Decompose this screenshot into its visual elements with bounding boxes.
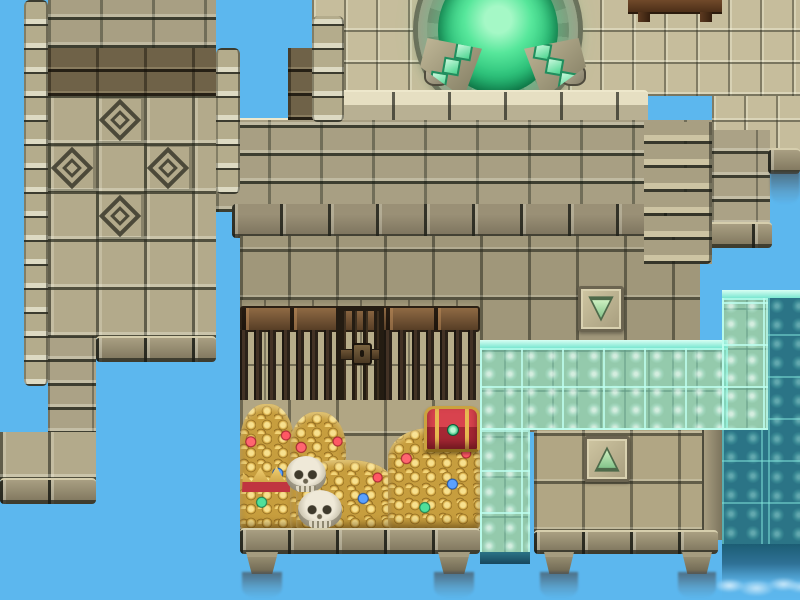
- diamond-tile: [144, 144, 192, 192]
- tower-base-ledge: [0, 478, 96, 504]
- table-leg: [638, 12, 650, 22]
- game-viewport: [0, 0, 800, 600]
- treasure-chest[interactable]: [424, 406, 480, 452]
- water-column: [480, 430, 530, 556]
- platform-ledge: [534, 530, 718, 554]
- table-leg: [700, 12, 712, 22]
- support-foot: [544, 552, 574, 574]
- platform-edge: [702, 430, 722, 540]
- wall-bricks: [216, 120, 712, 212]
- down-arrow-icon: [587, 295, 616, 324]
- tower-base: [0, 432, 96, 480]
- water-right: [722, 298, 768, 430]
- diamond-tile: [96, 96, 144, 144]
- wall-stairs: [644, 122, 712, 264]
- cell-door[interactable]: [336, 306, 384, 406]
- right-column-ledge: [704, 222, 772, 248]
- tower-right-trim: [216, 48, 240, 194]
- falling-mist: [242, 572, 282, 598]
- cliff-ledge: [768, 148, 800, 174]
- tower-dark-band: [48, 48, 216, 96]
- terrace-left-trim: [312, 16, 344, 122]
- diamond-tile: [96, 192, 144, 240]
- tower-left-trim: [24, 0, 48, 386]
- tower-ledge: [96, 336, 216, 362]
- diamond-tile: [48, 144, 96, 192]
- cell-bars: [240, 330, 336, 406]
- support-foot: [438, 552, 470, 574]
- right-column: [712, 130, 770, 226]
- wall-cap: [336, 90, 648, 124]
- falling-mist: [540, 572, 578, 598]
- water-sheet: [480, 348, 728, 430]
- door-lock-icon: [352, 343, 372, 365]
- up-arrow-icon: [593, 445, 622, 474]
- waterfall-mist: [722, 544, 800, 600]
- treasure-ledge: [240, 528, 480, 554]
- water-right-deep: [768, 298, 800, 546]
- tower-bricks: [48, 0, 216, 48]
- falling-mist: [434, 572, 474, 598]
- tower-tiles-low: [48, 288, 216, 338]
- support-foot: [682, 552, 712, 574]
- falling-mist: [678, 572, 716, 598]
- down-arrow-plaque[interactable]: [578, 286, 624, 332]
- water-right-lower: [722, 430, 768, 546]
- skull: [298, 490, 342, 528]
- wall-notch-column: [288, 48, 314, 120]
- water-column-base: [480, 552, 530, 564]
- support-foot: [246, 552, 278, 574]
- skull: [286, 456, 326, 492]
- cell-bars: [384, 330, 480, 406]
- wall-base-cap: [232, 204, 712, 238]
- ledge-mist: [770, 172, 800, 204]
- up-arrow-plaque[interactable]: [584, 436, 630, 482]
